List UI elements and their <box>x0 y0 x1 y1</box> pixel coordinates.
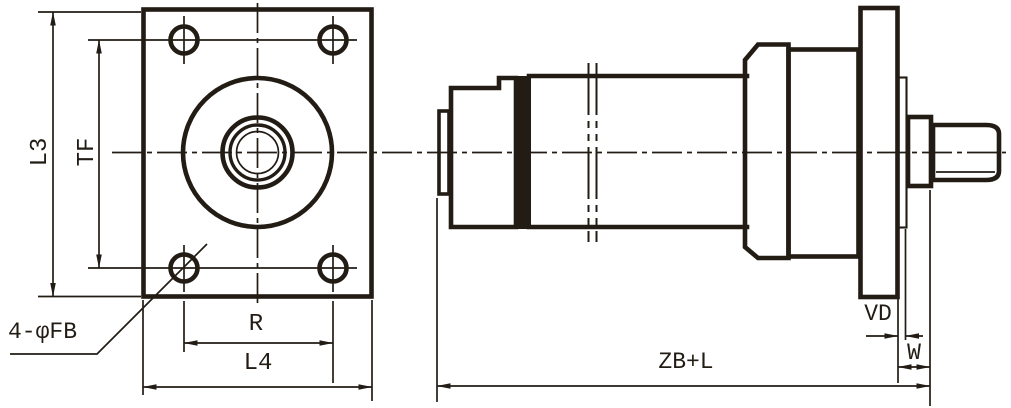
dim-label-w: W <box>907 340 921 366</box>
front-view: L3 TF R L4 4-φFB <box>8 10 372 402</box>
tie-band <box>515 76 531 229</box>
drawing-canvas: L3 TF R L4 4-φFB <box>0 0 1011 408</box>
dimension-tf: TF <box>74 40 101 268</box>
dim-label-tf: TF <box>74 138 101 167</box>
dim-label-zbl: ZB+L <box>658 349 713 375</box>
head-collar <box>745 45 789 259</box>
technical-drawing: L3 TF R L4 4-φFB <box>0 0 1011 408</box>
dim-label-r: R <box>249 311 263 338</box>
dimension-zbl: ZB+L <box>437 190 930 406</box>
dim-label-vd: VD <box>864 301 892 327</box>
centerlines <box>112 3 1006 304</box>
rod-bushing-boss <box>908 117 931 186</box>
dim-label-l3: L3 <box>27 138 54 167</box>
dimension-w: W <box>898 340 930 367</box>
callout-label-fb: 4-φFB <box>8 319 77 345</box>
side-view: ZB+L VD W <box>437 8 999 406</box>
hole-callout: 4-φFB <box>8 244 207 354</box>
dim-label-l4: L4 <box>244 350 273 377</box>
